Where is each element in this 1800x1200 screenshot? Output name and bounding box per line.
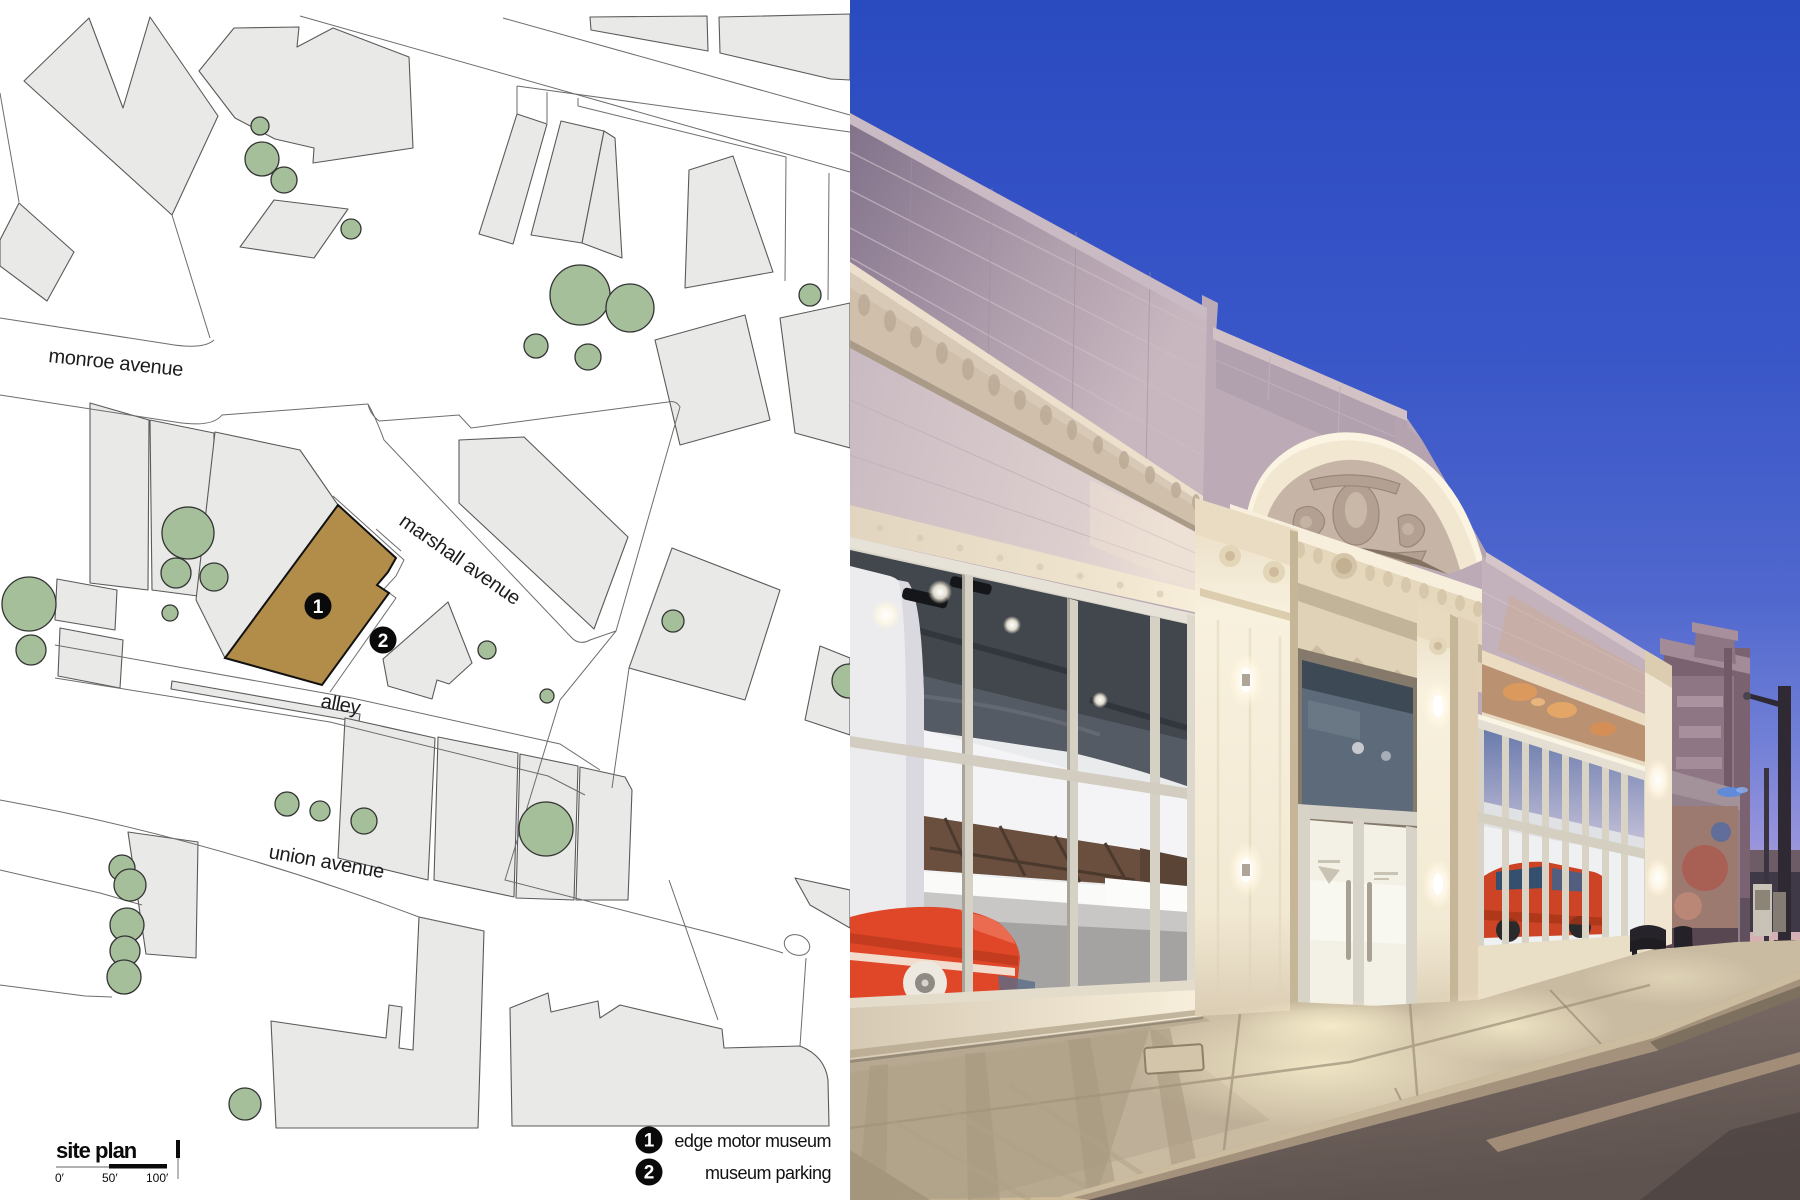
svg-text:site plan: site plan <box>56 1138 137 1163</box>
svg-text:monroe avenue: monroe avenue <box>47 345 184 381</box>
svg-text:0′: 0′ <box>55 1171 65 1185</box>
svg-text:2: 2 <box>644 1163 655 1184</box>
svg-text:50′: 50′ <box>102 1171 118 1185</box>
svg-text:1: 1 <box>313 597 324 618</box>
svg-text:edge motor museum: edge motor museum <box>674 1131 831 1151</box>
svg-text:1: 1 <box>644 1131 655 1152</box>
svg-text:2: 2 <box>378 631 389 652</box>
svg-text:100′: 100′ <box>146 1171 169 1185</box>
svg-text:museum parking: museum parking <box>705 1163 831 1183</box>
